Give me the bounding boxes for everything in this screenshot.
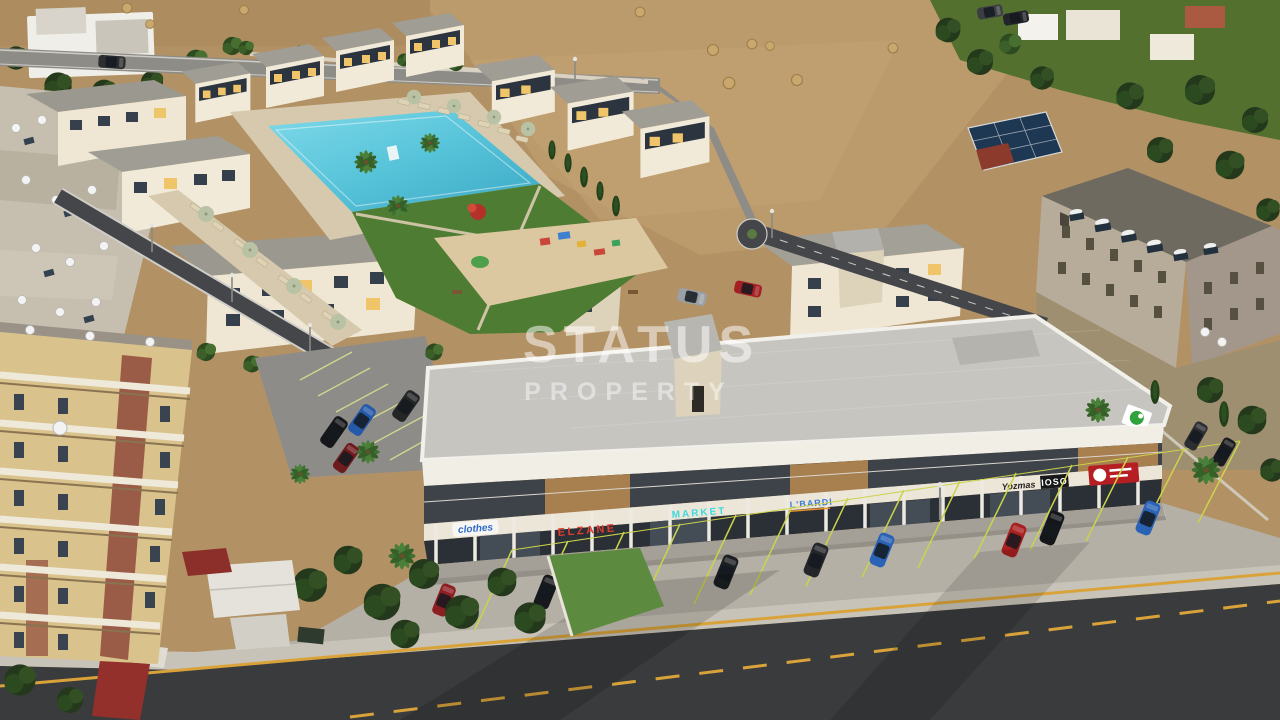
tree bbox=[57, 687, 83, 713]
tree bbox=[334, 546, 363, 575]
water-tank bbox=[146, 338, 155, 347]
tree bbox=[1216, 151, 1245, 180]
water-tank bbox=[1201, 328, 1210, 337]
cypress-tree bbox=[1219, 401, 1229, 427]
hay-bale bbox=[708, 45, 719, 56]
house bbox=[1150, 34, 1194, 60]
tree bbox=[1238, 406, 1267, 435]
bench bbox=[452, 290, 462, 294]
tree bbox=[514, 602, 545, 633]
tree bbox=[1030, 66, 1054, 89]
watermark-line1: STATUS bbox=[523, 316, 759, 374]
satellite-dish bbox=[53, 421, 67, 435]
house bbox=[1066, 10, 1120, 40]
hay-bale bbox=[240, 6, 249, 15]
hay-bale bbox=[888, 43, 898, 53]
tree bbox=[1116, 82, 1144, 109]
sign-cafe bbox=[1088, 462, 1139, 486]
tree bbox=[936, 18, 961, 43]
aerial-development-render: clothes ELZANE MARKET L'BARDI Yozmas IOS… bbox=[0, 0, 1280, 720]
water-tank bbox=[1218, 338, 1227, 347]
entrance-steps bbox=[92, 660, 150, 720]
watermark-line2: PROPERTY bbox=[524, 378, 734, 406]
scene-canvas: clothes ELZANE MARKET L'BARDI Yozmas IOS… bbox=[0, 0, 1280, 720]
water-tank bbox=[86, 332, 95, 341]
cypress-tree bbox=[612, 196, 620, 217]
parked-car bbox=[98, 55, 126, 70]
hay-bale bbox=[766, 42, 775, 51]
red-roof-house bbox=[1185, 6, 1225, 28]
tree bbox=[409, 559, 439, 589]
hay-bale bbox=[146, 20, 155, 29]
hay-bale bbox=[635, 7, 645, 17]
play-structure bbox=[471, 256, 489, 268]
tree bbox=[391, 620, 420, 649]
tree bbox=[293, 568, 327, 602]
tree bbox=[364, 584, 401, 620]
tree bbox=[967, 49, 993, 75]
tree bbox=[4, 664, 35, 695]
cypress-tree bbox=[580, 167, 588, 188]
hay-bale bbox=[122, 3, 132, 13]
watermark: STATUS PROPERTY bbox=[523, 316, 759, 406]
cypress-tree bbox=[548, 140, 555, 159]
tree bbox=[1242, 107, 1268, 133]
canopy-tent bbox=[230, 614, 290, 650]
tree bbox=[488, 568, 517, 597]
tree bbox=[1256, 198, 1280, 221]
cypress-tree bbox=[1151, 380, 1160, 404]
red-awning bbox=[182, 548, 232, 576]
bench bbox=[628, 290, 638, 294]
water-tank bbox=[26, 326, 35, 335]
tree bbox=[1197, 377, 1223, 403]
tree bbox=[1147, 137, 1173, 163]
hay-bale bbox=[723, 77, 735, 89]
tree bbox=[1185, 75, 1215, 105]
tree bbox=[445, 595, 479, 629]
cypress-tree bbox=[596, 181, 603, 200]
hay-bale bbox=[792, 75, 803, 86]
yellow-apartment-building bbox=[0, 322, 192, 664]
cypress-tree bbox=[564, 153, 571, 172]
utility-vehicle bbox=[297, 627, 324, 645]
hay-bale bbox=[747, 39, 757, 49]
